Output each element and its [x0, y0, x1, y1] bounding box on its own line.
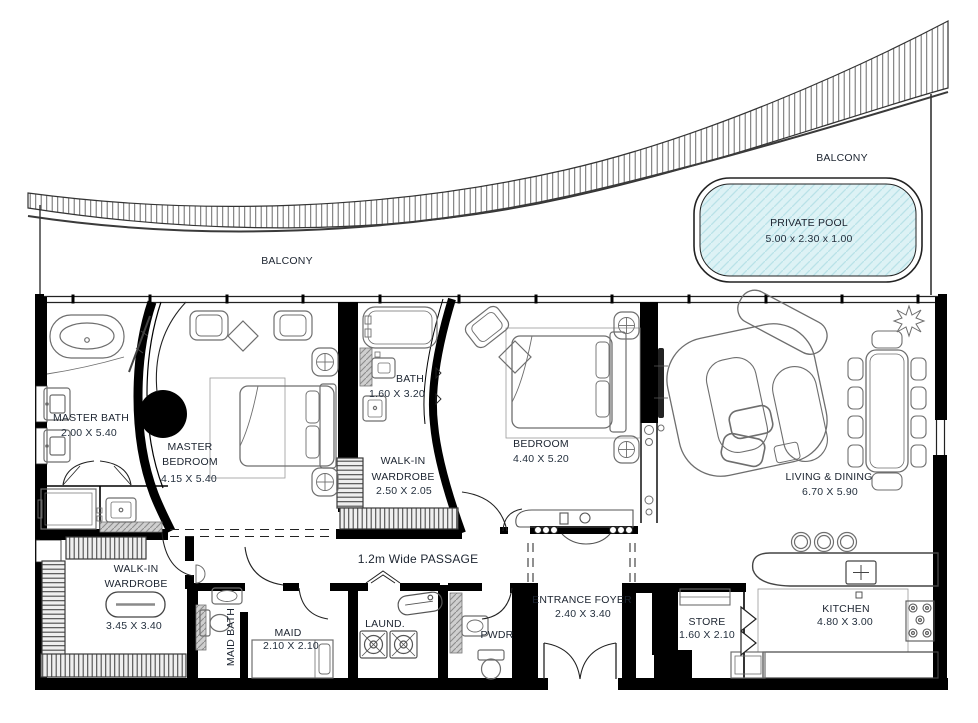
sideboard-icon [516, 510, 633, 544]
living-dining-furniture [516, 285, 926, 544]
rug-icon [506, 328, 640, 438]
rug-icon [228, 321, 258, 351]
kitchen-name-label: KITCHEN [822, 604, 870, 615]
stove-icon [906, 601, 934, 641]
washer-icon [360, 631, 387, 658]
sink-icon [372, 358, 395, 378]
basin-icon [196, 565, 205, 583]
ottoman-icon [499, 341, 531, 373]
armchair-icon [274, 311, 312, 340]
bed-icon [512, 332, 626, 432]
floor-plan: BALCONY BALCONY PRIVATE POOL 5.00 x 2.30… [0, 0, 978, 723]
toilet-icon [363, 396, 386, 421]
armchair-icon [463, 304, 512, 351]
bathtub-icon [363, 307, 437, 348]
double-door-mark [366, 571, 400, 583]
master-bedroom-furniture [190, 311, 338, 496]
plant-icon [894, 306, 924, 336]
laundry-basin-icon [397, 591, 443, 616]
bedroom-dims-label: 4.40 X 5.20 [513, 454, 569, 465]
store-dims-label: 1.60 X 2.10 [679, 630, 735, 641]
bath-dims-label: 1.60 X 3.20 [369, 389, 425, 400]
walkin-large-dims-label: 3.45 X 3.40 [106, 621, 162, 632]
armchair-icon [190, 311, 228, 340]
balcony-left-label: BALCONY [261, 256, 313, 267]
oven-icon [731, 652, 765, 678]
pool-dims-label: 5.00 x 2.30 x 1.00 [765, 234, 852, 245]
walkin-large-name-line1: WALK-IN [114, 564, 159, 575]
balcony-right-label: BALCONY [816, 153, 868, 164]
store-name-label: STORE [689, 617, 726, 628]
island-counter-icon [753, 553, 938, 586]
column [139, 390, 187, 438]
entrance-foyer-dims-label: 2.40 X 3.40 [555, 609, 611, 620]
powder-fixtures [462, 616, 504, 679]
master-bedroom-dims-label: 4.15 X 5.40 [161, 474, 217, 485]
bed-icon [240, 384, 336, 468]
dining-table-icon [848, 331, 926, 490]
side-table-icon [614, 436, 639, 463]
side-table-icon [312, 348, 338, 376]
walkin-large-name-line2: WARDROBE [104, 579, 167, 590]
master-bedroom-name-line1: MASTER [168, 442, 213, 453]
master-bedroom-name-line2: BEDROOM [162, 457, 218, 468]
walkin-small-dims-label: 2.50 X 2.05 [376, 486, 432, 497]
bathtub-icon [50, 315, 124, 358]
maid-name-label: MAID [274, 628, 301, 639]
kitchen-dims-label: 4.80 X 3.00 [817, 617, 873, 628]
walkin-small-name-line2: WARDROBE [371, 472, 434, 483]
living-dining-name-label: LIVING & DINING [785, 472, 872, 483]
maid-dims-label: 2.10 X 2.10 [263, 641, 319, 652]
side-table-icon [312, 468, 338, 496]
living-dining-dims-label: 6.70 X 5.90 [802, 487, 858, 498]
washer-icon [390, 631, 417, 658]
powder-name-label: PWDR [481, 630, 514, 641]
pool-name-label: PRIVATE POOL [770, 218, 848, 229]
walkin-small-name-line1: WALK-IN [381, 456, 426, 467]
decor-vases-icon [645, 425, 665, 515]
private-pool [694, 178, 922, 282]
bath-name-label: BATH [396, 374, 424, 385]
sink-icon [846, 561, 876, 584]
laundry-name-label: LAUND. [365, 619, 405, 630]
toilet-icon [478, 650, 504, 679]
toilet-icon [97, 498, 136, 522]
passage-label: 1.2m Wide PASSAGE [358, 553, 479, 565]
bar-stool-icon [792, 533, 857, 552]
master-bath-dims-label: 2.00 X 5.40 [61, 428, 117, 439]
wardrobe-bench [106, 592, 165, 617]
master-bath-name-label: MASTER BATH [53, 413, 129, 424]
entrance-foyer-name-label: ENTRANCE FOYER [532, 595, 632, 606]
maid-bath-name-label: MAID BATH [226, 608, 237, 666]
sofa-icon [659, 285, 835, 484]
bedroom-name-label: BEDROOM [513, 439, 569, 450]
counter-icon [763, 652, 938, 678]
